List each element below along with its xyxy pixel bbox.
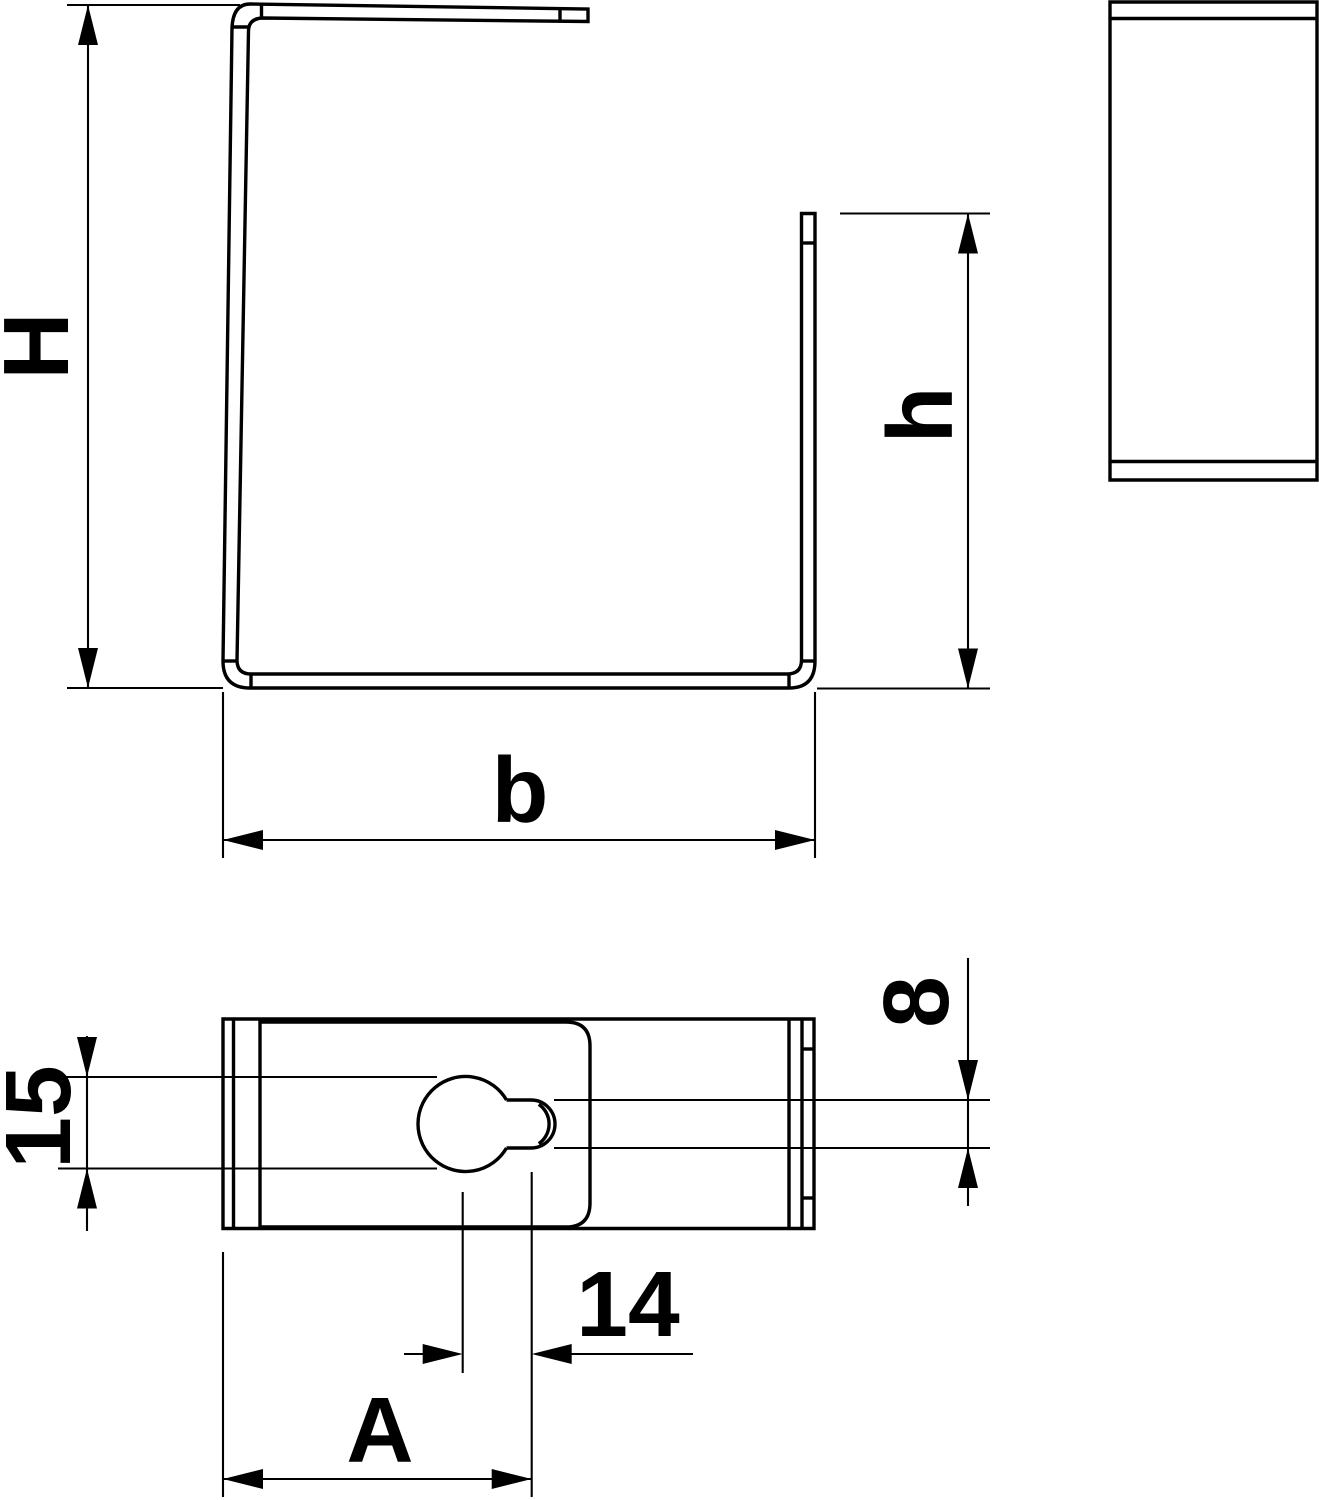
arrowhead-left <box>223 830 263 850</box>
dimension-label-b: b <box>492 738 549 842</box>
dimension-label-14: 14 <box>576 1252 680 1356</box>
keyhole-tab-inner-arc <box>539 1104 549 1143</box>
dimension-A: A <box>223 1252 532 1497</box>
arrowhead-up <box>958 1148 978 1188</box>
arrowhead-left <box>223 1469 263 1489</box>
front-view-outline <box>1110 2 1317 480</box>
dimension-15: 15 <box>0 1036 437 1231</box>
arrowhead-right <box>423 1344 463 1364</box>
arrowhead-right <box>775 830 815 850</box>
top-view <box>223 1019 814 1229</box>
arrowhead-left <box>532 1344 572 1364</box>
tongue-outline <box>261 1022 590 1227</box>
dimension-8: 8 <box>554 958 990 1206</box>
dimension-label-15: 15 <box>0 1065 90 1168</box>
dimension-label-h: h <box>868 387 972 444</box>
keyhole-circle <box>418 1077 506 1172</box>
technical-drawing: H h b 15 8 <box>0 0 1319 1500</box>
dimension-label-8: 8 <box>864 976 968 1028</box>
arrowhead-down <box>958 649 978 689</box>
arrowhead-right <box>492 1469 532 1489</box>
front-view <box>1110 2 1317 480</box>
arrowhead-down <box>78 648 98 688</box>
arrowhead-down <box>958 1060 978 1100</box>
side-view-outline <box>223 4 815 688</box>
dimension-14: 14 <box>404 1172 693 1497</box>
dimension-b: b <box>223 692 815 858</box>
top-view-outline <box>223 1019 814 1229</box>
dimension-h: h <box>817 214 990 689</box>
arrowhead-up <box>78 5 98 45</box>
arrowhead-up <box>77 1169 97 1209</box>
dimension-label-A: A <box>346 1378 413 1482</box>
dimension-H: H <box>0 5 240 688</box>
dimension-label-H: H <box>0 312 88 379</box>
side-view <box>223 4 815 688</box>
arrowhead-up <box>958 214 978 254</box>
